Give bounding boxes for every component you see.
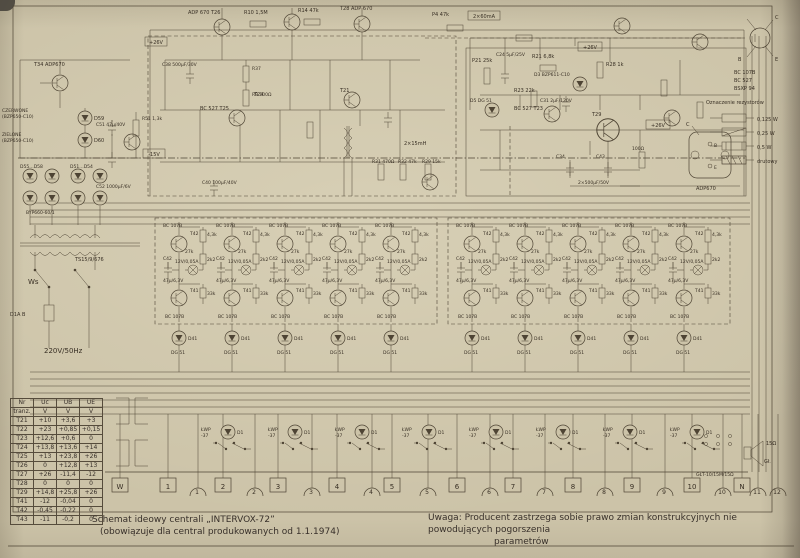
adp670-package: C B E ADP670 bbox=[686, 122, 731, 192]
table-header-cell: V bbox=[80, 408, 103, 417]
voltage-table-head: Nr Uc UB UE tranz. V V V bbox=[11, 399, 103, 417]
table-cell: T27 bbox=[11, 471, 34, 480]
package-pin-bottom-label: E bbox=[714, 165, 717, 171]
label-t34: T34 ADP670 bbox=[33, 62, 65, 68]
label-minus15v: -15V bbox=[148, 152, 160, 158]
label-r21: R21 6,8k bbox=[532, 54, 554, 60]
table-header-cell: V bbox=[34, 408, 57, 417]
label-c31: C31 2µF/120V bbox=[540, 98, 573, 104]
terminal-jack-6: 6 bbox=[487, 489, 491, 496]
terminal-jack-1: 1 bbox=[195, 489, 199, 496]
terminal-box-4: 4 bbox=[335, 483, 340, 491]
table-cell: -0,45 bbox=[34, 507, 57, 516]
channel-diode-row bbox=[171, 331, 702, 356]
legend-item-2: 0,25 W bbox=[757, 131, 775, 137]
table-header-cell: V bbox=[57, 408, 80, 417]
table-row: T21 +10 +3,6 +3 bbox=[11, 417, 103, 426]
terminal-box-8: 8 bbox=[571, 483, 575, 491]
table-cell: 0 bbox=[34, 462, 57, 471]
table-cell: -0,22 bbox=[57, 507, 80, 516]
label-c24: C24 5µF/25V bbox=[496, 52, 526, 58]
circuit-traces bbox=[18, 8, 766, 472]
table-cell: 0 bbox=[34, 480, 57, 489]
legend-type-3: BSXP 94 bbox=[734, 86, 755, 92]
subscriber-channels bbox=[163, 222, 722, 322]
table-cell: T24 bbox=[11, 444, 34, 453]
table-cell: +13 bbox=[34, 453, 57, 462]
terminal-box-7: 7 bbox=[511, 483, 515, 491]
power-section-labels: T34 ADP670 CZERWONE (BZP650-C10) D59 ZIE… bbox=[2, 62, 162, 355]
label-r14: R14 47k bbox=[298, 8, 319, 14]
label-t28: T28 ADP 670 bbox=[339, 6, 372, 12]
speaker-name-label: Gł. bbox=[764, 459, 771, 465]
table-header-cell: UE bbox=[80, 399, 103, 408]
legend-type-1: BC 107B bbox=[734, 70, 756, 76]
table-row: T22 +23 +0,85 +0,15 bbox=[11, 426, 103, 435]
table-header-cell: tranz. bbox=[11, 408, 34, 417]
table-header-cell: Nr bbox=[11, 399, 34, 408]
label-t23: BC 527 T23 bbox=[514, 106, 543, 112]
table-cell: 0 bbox=[57, 480, 80, 489]
table-header-cell: UB bbox=[57, 399, 80, 408]
label-mains-voltage: 220V/50Hz bbox=[44, 347, 83, 355]
amplifier-section-labels: ADP 670 T26 R10 1,5M R14 47k T28 ADP 670… bbox=[143, 6, 670, 186]
label-czerwone-1: CZERWONE bbox=[2, 108, 28, 114]
label-c40: C40 100µF/40V bbox=[202, 180, 238, 186]
table-cell: T41 bbox=[11, 498, 34, 507]
label-t24: T24 bbox=[253, 92, 263, 98]
table-cell: T29 bbox=[11, 489, 34, 498]
table-header-cell: Uc bbox=[34, 399, 57, 408]
table-row: T26 0 +12,8 +13 bbox=[11, 462, 103, 471]
terminal-box-5: 5 bbox=[390, 483, 394, 491]
label-r100: 100Ω bbox=[632, 146, 645, 152]
label-lamp-current: 2×60mA bbox=[473, 14, 496, 20]
table-cell: T26 bbox=[11, 462, 34, 471]
resistor-legend: C E B BC 107B BC 527 BSXP 94 Oznaczenie … bbox=[706, 15, 779, 165]
table-cell: +0,15 bbox=[80, 426, 103, 435]
label-r32: R32 47k bbox=[398, 159, 417, 165]
label-r31: R31 470Ω bbox=[372, 159, 395, 165]
table-cell: +12,8 bbox=[57, 462, 80, 471]
table-cell: -0,2 bbox=[57, 516, 80, 525]
label-t21: T21 bbox=[339, 88, 349, 94]
label-r37: R37 bbox=[252, 66, 261, 72]
drawing-title-line2: (obowiązuje dla central produkowanych od… bbox=[100, 526, 422, 538]
package-pin-top-label: B bbox=[714, 143, 717, 149]
label-t26: ADP 670 T26 bbox=[188, 10, 220, 16]
package-case-label: C bbox=[686, 122, 690, 128]
drawing-frame bbox=[8, 6, 794, 546]
table-row: T27 +26 -11,4 -12 bbox=[11, 471, 103, 480]
voltage-table-body: T21 +10 +3,6 +3 T22 +23 +0,85 +0,15 T23 … bbox=[11, 417, 103, 525]
table-cell: +0,6 bbox=[57, 435, 80, 444]
table-row: T28 0 0 0 bbox=[11, 480, 103, 489]
label-bridge-1: D55…D58 bbox=[20, 164, 43, 170]
speaker-type-label: GŁT-10/15M/15Ω bbox=[696, 472, 734, 478]
table-cell: +12,6 bbox=[34, 435, 57, 444]
label-czerwone-2: (BZP650-C10) bbox=[2, 114, 34, 120]
label-bridge-2: D51…D54 bbox=[70, 164, 93, 170]
legend-title: Oznaczenie rezystorów bbox=[706, 99, 764, 106]
terminal-jack-2: 2 bbox=[252, 489, 256, 496]
table-cell: +23,8 bbox=[57, 453, 80, 462]
label-c51: C51 47µ/40V bbox=[96, 122, 126, 128]
table-row: T42 -0,45 -0,22 0 bbox=[11, 507, 103, 516]
drawing-title-line1: Schemat ideowy centrali „INTERVOX-72” bbox=[92, 514, 422, 526]
table-header-row: Nr Uc UB UE bbox=[11, 399, 103, 408]
label-mains-switch: Ws bbox=[28, 278, 39, 286]
schematic-canvas: BC 107B T42 4,3k 27k 2k2 12V/0,05A C42 4… bbox=[0, 0, 800, 558]
terminal-box-w: W bbox=[117, 483, 124, 491]
table-cell: -11,4 bbox=[57, 471, 80, 480]
table-cell: +3 bbox=[80, 417, 103, 426]
terminal-jack-5: 5 bbox=[425, 489, 429, 496]
table-cell: +10 bbox=[34, 417, 57, 426]
table-cell: +14 bbox=[80, 444, 103, 453]
label-byp-diodes: BYP660-60/1 bbox=[26, 210, 55, 216]
terminal-jack-11: 11 bbox=[753, 489, 761, 496]
legend-pin-c: C bbox=[775, 15, 779, 21]
table-cell: T21 bbox=[11, 417, 34, 426]
label-r10: R10 1,5M bbox=[244, 10, 268, 16]
table-cell: -11 bbox=[34, 516, 57, 525]
table-cell: +0,85 bbox=[57, 426, 80, 435]
terminal-box-6: 6 bbox=[455, 483, 460, 491]
table-cell: -12 bbox=[34, 498, 57, 507]
label-p4: P4 47k bbox=[432, 12, 449, 18]
label-c52: C52 1000µF/6V bbox=[96, 184, 132, 190]
label-d3: D3 BZP611-C10 bbox=[534, 72, 570, 78]
table-row: T25 +13 +23,8 +26 bbox=[11, 453, 103, 462]
photo-edge-shadow bbox=[782, 0, 800, 558]
terminal-jack-12: 12 bbox=[773, 489, 781, 496]
legend-pin-e: E bbox=[775, 57, 778, 63]
label-inductor: 2×15mH bbox=[404, 141, 427, 147]
table-cell: +13 bbox=[80, 462, 103, 471]
table-header-row: tranz. V V V bbox=[11, 408, 103, 417]
label-d5: D5 DG 51 bbox=[470, 98, 492, 104]
wiring-bus-matrix bbox=[30, 203, 778, 488]
label-plus26v-c: +26V bbox=[651, 123, 666, 129]
label-p21: P21 25k bbox=[472, 58, 492, 64]
table-cell: +13,8 bbox=[34, 444, 57, 453]
label-r29: R29 15k bbox=[422, 159, 441, 165]
legend-pin-b: B bbox=[738, 57, 742, 63]
label-zielone-1: ZIELONE bbox=[2, 132, 22, 138]
terminal-jack-8: 8 bbox=[602, 489, 606, 496]
manufacturer-note-line2: parametrów bbox=[494, 536, 790, 548]
legend-item-3: 0,5 W bbox=[757, 145, 772, 151]
table-cell: T43 bbox=[11, 516, 34, 525]
table-cell: T28 bbox=[11, 480, 34, 489]
table-cell: +26 bbox=[80, 453, 103, 462]
table-row: T23 +12,6 +0,6 0 bbox=[11, 435, 103, 444]
terminal-box-3: 3 bbox=[276, 483, 280, 491]
table-cell: T25 bbox=[11, 453, 34, 462]
terminal-jack-7: 7 bbox=[542, 489, 546, 496]
label-c34: C34 bbox=[556, 154, 565, 160]
label-t29: T29 bbox=[591, 112, 601, 118]
table-row: T24 +13,8 +13,6 +14 bbox=[11, 444, 103, 453]
manufacturer-note: Uwaga: Producent zastrzega sobie prawo z… bbox=[428, 512, 790, 548]
table-cell: 0 bbox=[80, 498, 103, 507]
table-cell: -12 bbox=[80, 471, 103, 480]
table-cell: +23 bbox=[34, 426, 57, 435]
terminal-box-n: N bbox=[739, 483, 744, 491]
label-fuse: D1A B bbox=[10, 312, 26, 318]
terminal-box-10: 10 bbox=[688, 483, 697, 491]
terminal-box-2: 2 bbox=[221, 483, 225, 491]
voltage-table: Nr Uc UB UE tranz. V V V T21 +10 +3,6 +3… bbox=[10, 398, 103, 525]
speaker-impedance-label: 15Ω bbox=[766, 441, 776, 447]
scanned-schematic-page: BC 107B T42 4,3k 27k 2k2 12V/0,05A C42 4… bbox=[0, 0, 800, 558]
terminal-box-9: 9 bbox=[630, 483, 634, 491]
label-zielone-2: (BZP650-C10) bbox=[2, 138, 34, 144]
label-c38: C38 500µF/30V bbox=[162, 62, 198, 68]
label-d59: D59 bbox=[94, 116, 104, 122]
label-plus26v-a: +26V bbox=[149, 40, 164, 46]
legend-item-1: 0,125 W bbox=[757, 117, 778, 123]
label-r23: R23 22k bbox=[514, 88, 535, 94]
table-cell: T23 bbox=[11, 435, 34, 444]
label-transformer: TS15/9/676 bbox=[74, 257, 104, 263]
table-row: T41 -12 -0,04 0 bbox=[11, 498, 103, 507]
manufacturer-note-line1: Uwaga: Producent zastrzega sobie prawo z… bbox=[428, 512, 790, 536]
table-row: T29 +14,8 +25,8 +26 bbox=[11, 489, 103, 498]
terminal-jack-4: 4 bbox=[369, 489, 373, 496]
table-cell: +14,8 bbox=[34, 489, 57, 498]
legend-type-2: BC 527 bbox=[734, 78, 752, 84]
table-cell: T22 bbox=[11, 426, 34, 435]
label-c43: C43 bbox=[596, 154, 605, 160]
label-plus26v-b: +26V bbox=[583, 45, 598, 51]
terminal-strip: W 1 2 3 4 5 6 7 8 9 10 N 1 2 3 4 5 6 7 8… bbox=[112, 478, 786, 496]
table-cell: T42 bbox=[11, 507, 34, 516]
table-cell: 0 bbox=[80, 435, 103, 444]
terminal-box-1: 1 bbox=[166, 483, 170, 491]
table-cell: +26 bbox=[34, 471, 57, 480]
table-cell: +26 bbox=[80, 489, 103, 498]
table-cell: -0,04 bbox=[57, 498, 80, 507]
table-row: T43 -11 -0,2 0 bbox=[11, 516, 103, 525]
label-d60: D60 bbox=[94, 138, 104, 144]
label-r51: R51 1,3k bbox=[142, 116, 162, 122]
table-cell: +25,8 bbox=[57, 489, 80, 498]
legend-item-4: drutowy bbox=[757, 159, 778, 165]
terminal-jack-3: 3 bbox=[309, 489, 313, 496]
label-r28: R28 1k bbox=[606, 62, 624, 68]
label-t25: BC 527 T25 bbox=[200, 106, 229, 112]
table-cell: 0 bbox=[80, 480, 103, 489]
table-cell: +3,6 bbox=[57, 417, 80, 426]
table-cell: +13,6 bbox=[57, 444, 80, 453]
label-caps2x: 2×500µF/50V bbox=[578, 180, 610, 186]
package-name-label: ADP670 bbox=[696, 186, 716, 192]
terminal-jack-9: 9 bbox=[662, 489, 666, 496]
drawing-title: Schemat ideowy centrali „INTERVOX-72” (o… bbox=[92, 514, 422, 538]
terminal-jack-10: 10 bbox=[718, 489, 726, 496]
components-artwork bbox=[23, 14, 708, 205]
